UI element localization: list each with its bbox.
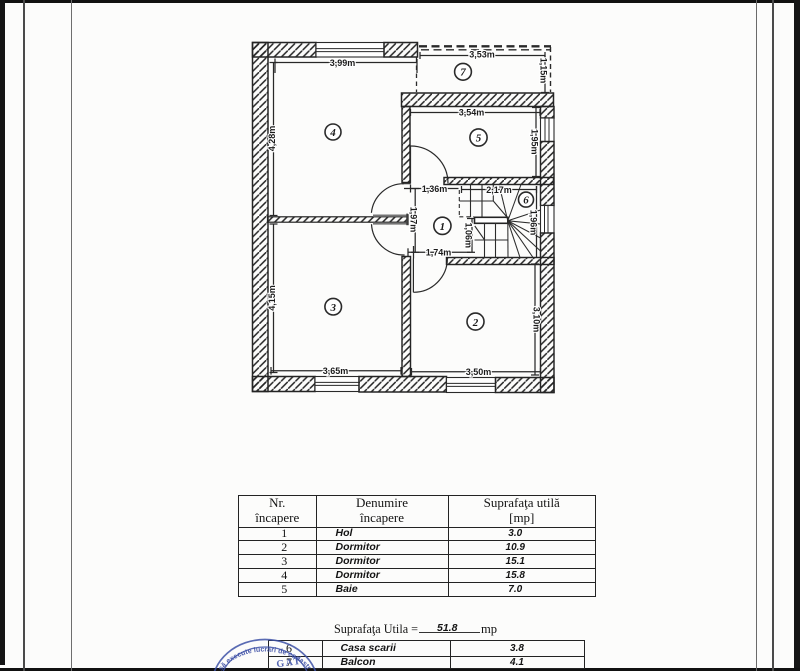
svg-text:2: 2 bbox=[472, 317, 479, 329]
svg-text:3,99m: 3,99m bbox=[330, 58, 356, 68]
svg-text:1,95m: 1,95m bbox=[530, 129, 540, 155]
svg-text:2,17m: 2,17m bbox=[486, 185, 512, 195]
svg-text:1,36m: 1,36m bbox=[422, 184, 448, 194]
svg-text:1,97m: 1,97m bbox=[409, 207, 419, 233]
svg-text:3: 3 bbox=[329, 302, 336, 314]
svg-text:1,15m: 1,15m bbox=[539, 58, 549, 84]
svg-text:5: 5 bbox=[476, 133, 482, 145]
svg-text:1,06m: 1,06m bbox=[464, 223, 474, 249]
svg-text:1: 1 bbox=[440, 221, 446, 233]
svg-text:3,65m: 3,65m bbox=[323, 366, 349, 376]
svg-text:3,10m: 3,10m bbox=[532, 307, 542, 333]
svg-text:3,54m: 3,54m bbox=[459, 108, 485, 118]
svg-text:4: 4 bbox=[329, 127, 336, 139]
svg-text:1,96m: 1,96m bbox=[529, 210, 539, 236]
svg-text:6: 6 bbox=[523, 195, 529, 207]
svg-text:4,15m: 4,15m bbox=[267, 285, 277, 311]
svg-text:7: 7 bbox=[460, 67, 466, 79]
svg-text:GAT: GAT bbox=[276, 656, 303, 670]
svg-text:1,74m: 1,74m bbox=[426, 248, 452, 258]
svg-text:3,53m: 3,53m bbox=[469, 50, 495, 60]
svg-text:3,50m: 3,50m bbox=[466, 367, 492, 377]
svg-text:4,28m: 4,28m bbox=[267, 126, 277, 152]
